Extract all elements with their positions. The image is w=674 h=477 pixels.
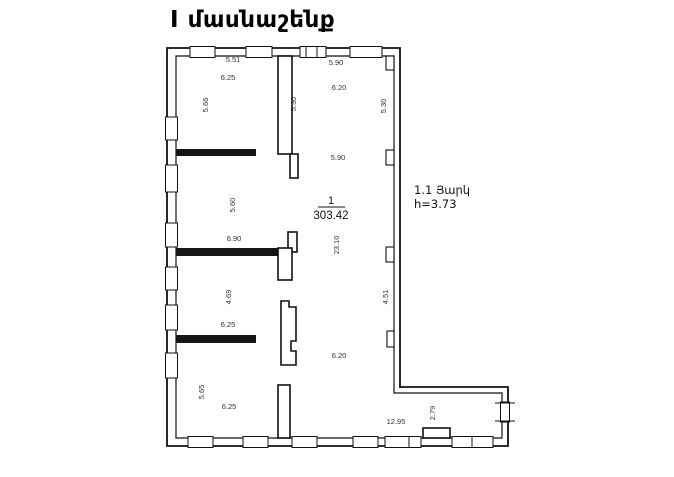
dimension-label: 6.25 [221, 73, 236, 82]
partition-wall [176, 149, 256, 156]
window [243, 437, 268, 448]
dimension-label: 6.25 [222, 402, 237, 411]
window [190, 47, 215, 58]
window [166, 165, 178, 192]
window [188, 437, 213, 448]
dimension-label: 6.90 [227, 234, 242, 243]
dimension-labels: 5.516.255.665.906.205.305.305.905.606.90… [197, 55, 437, 426]
dimension-label: 12.95 [387, 417, 406, 426]
dimension-label: 5.30 [289, 97, 298, 112]
window [166, 305, 178, 330]
dimension-label: 5.90 [329, 58, 344, 67]
dimension-label: 5.51 [226, 55, 241, 64]
partition-wall [176, 335, 256, 343]
room-area: 303.42 [313, 210, 348, 222]
window [246, 47, 272, 58]
window [385, 437, 421, 448]
room-number: 1 [328, 195, 334, 207]
window [166, 223, 178, 247]
dimension-label: 6.20 [332, 83, 347, 92]
dimension-label: 2.79 [428, 406, 437, 421]
dimension-label: 23.10 [332, 236, 341, 255]
wall-column [423, 428, 450, 438]
dimension-label: 5.90 [331, 153, 346, 162]
window [350, 47, 382, 58]
dimension-label: 6.25 [221, 320, 236, 329]
room-label: 1 303.42 [313, 195, 348, 222]
wall-pilaster [386, 247, 394, 262]
window [166, 117, 178, 140]
dimension-label: 5.60 [228, 198, 237, 213]
dimension-label: 4.69 [224, 290, 233, 305]
window [501, 402, 510, 422]
dimension-label: 5.65 [197, 385, 206, 400]
dimension-label: 4.51 [381, 290, 390, 305]
dimension-label: 6.20 [332, 351, 347, 360]
window [353, 437, 378, 448]
dimension-label: 5.30 [379, 99, 388, 114]
interior-pier [281, 301, 296, 365]
right-wall-window [495, 402, 515, 422]
floor-plan-page: I մասնաշենք 1.1 Յարկ h=3.73 [0, 0, 674, 477]
window [292, 437, 317, 448]
window [300, 47, 326, 58]
window [166, 267, 178, 290]
wall-pilaster [386, 56, 394, 70]
wall-pilaster [387, 331, 394, 347]
dimension-label: 5.66 [201, 98, 210, 113]
partition-wall [176, 248, 279, 256]
window [166, 353, 178, 378]
wall-pilaster [386, 150, 394, 165]
interior-wall [278, 385, 290, 438]
floor-plan-drawing: 1 303.42 5.516.255.665.906.205.305.305.9… [0, 0, 674, 477]
wall-pilaster [290, 154, 298, 178]
interior-pier [278, 248, 292, 280]
